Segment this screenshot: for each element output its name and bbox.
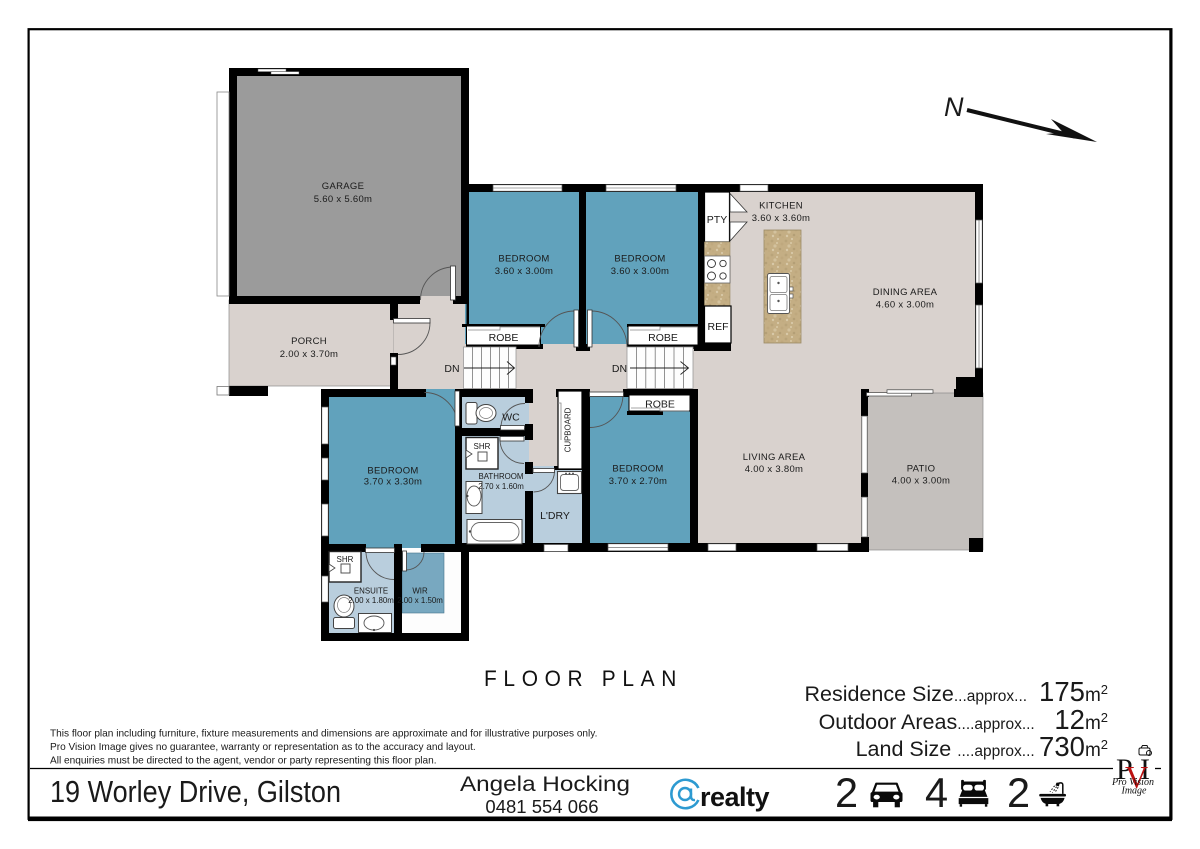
svg-text:ROBE: ROBE — [648, 332, 678, 344]
svg-text:L'DRY: L'DRY — [540, 510, 570, 522]
svg-text:PORCH: PORCH — [291, 336, 327, 347]
svg-text:realty: realty — [700, 782, 770, 812]
svg-text:Pro Vision Image gives no guar: Pro Vision Image gives no guarantee, war… — [50, 742, 476, 753]
svg-text:BEDROOM: BEDROOM — [498, 254, 549, 265]
svg-text:BEDROOM: BEDROOM — [612, 464, 663, 475]
svg-text:GARAGE: GARAGE — [322, 181, 364, 192]
svg-text:4.60 x 3.00m: 4.60 x 3.00m — [876, 300, 935, 311]
svg-text:SHR: SHR — [474, 442, 491, 451]
svg-text:BEDROOM: BEDROOM — [614, 254, 665, 265]
svg-text:2.00 x 3.70m: 2.00 x 3.70m — [280, 349, 339, 360]
svg-text:2.00 x 1.50m: 2.00 x 1.50m — [397, 596, 443, 605]
svg-text:2.00 x 1.80m: 2.00 x 1.80m — [348, 596, 394, 605]
svg-text:PATIO: PATIO — [907, 464, 936, 475]
svg-text:5.60 x 5.60m: 5.60 x 5.60m — [314, 194, 373, 205]
svg-text:4: 4 — [925, 769, 948, 816]
svg-text:2: 2 — [835, 769, 858, 816]
svg-text:This floor plan including furn: This floor plan including furniture, fix… — [50, 729, 597, 740]
svg-text:2.70 x 1.60m: 2.70 x 1.60m — [478, 482, 524, 491]
svg-text:LIVING AREA: LIVING AREA — [743, 452, 806, 463]
svg-text:WIR: WIR — [412, 587, 428, 596]
svg-text:19 Worley Drive, Gilston: 19 Worley Drive, Gilston — [50, 774, 341, 809]
svg-text:3.60 x 3.00m: 3.60 x 3.00m — [495, 266, 554, 277]
svg-text:SHR: SHR — [337, 555, 354, 564]
svg-text:REF: REF — [708, 321, 729, 333]
svg-text:4.00 x 3.80m: 4.00 x 3.80m — [745, 464, 804, 475]
svg-text:DN: DN — [444, 363, 459, 375]
svg-text:KITCHEN: KITCHEN — [759, 201, 803, 212]
svg-text:All enquiries must be directed: All enquiries must be directed to the ag… — [50, 756, 437, 767]
svg-text:Angela Hocking: Angela Hocking — [460, 772, 630, 796]
svg-text:DINING AREA: DINING AREA — [873, 287, 938, 298]
svg-text:N: N — [944, 92, 964, 122]
svg-text:0481 554 066: 0481 554 066 — [485, 796, 598, 817]
svg-text:ROBE: ROBE — [645, 399, 675, 411]
svg-text:3.60 x 3.00m: 3.60 x 3.00m — [611, 266, 670, 277]
svg-text:BATHROOM: BATHROOM — [478, 472, 523, 481]
svg-text:BEDROOM: BEDROOM — [367, 466, 418, 477]
svg-text:3.70 x 3.30m: 3.70 x 3.30m — [364, 477, 423, 488]
svg-text:Image: Image — [1121, 786, 1148, 797]
svg-text:2: 2 — [1007, 769, 1030, 816]
svg-text:DN: DN — [612, 363, 627, 375]
svg-text:4.00 x 3.00m: 4.00 x 3.00m — [892, 476, 951, 487]
svg-text:ENSUITE: ENSUITE — [354, 587, 388, 596]
svg-text:3.70 x 2.70m: 3.70 x 2.70m — [609, 476, 668, 487]
svg-text:PTY: PTY — [707, 214, 727, 226]
svg-text:FLOOR PLAN: FLOOR PLAN — [484, 666, 683, 691]
svg-text:ROBE: ROBE — [489, 332, 519, 344]
svg-text:3.60 x 3.60m: 3.60 x 3.60m — [752, 213, 811, 224]
svg-text:WC: WC — [502, 412, 520, 424]
svg-text:CUPBOARD: CUPBOARD — [564, 407, 573, 452]
